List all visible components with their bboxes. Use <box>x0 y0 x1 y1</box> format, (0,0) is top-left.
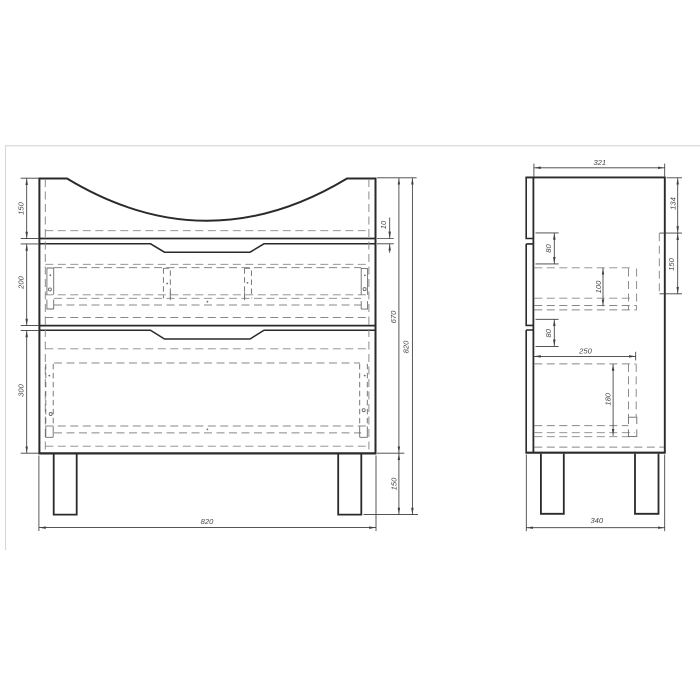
svg-text:100: 100 <box>594 280 603 293</box>
svg-text:150: 150 <box>667 257 676 270</box>
svg-text:820: 820 <box>201 517 214 526</box>
svg-text:340: 340 <box>590 516 603 525</box>
svg-text:321: 321 <box>593 158 606 167</box>
svg-text:250: 250 <box>578 347 592 356</box>
svg-text:150: 150 <box>390 477 399 490</box>
svg-text:10: 10 <box>379 220 388 229</box>
svg-text:820: 820 <box>401 340 410 353</box>
svg-text:200: 200 <box>16 275 25 289</box>
svg-text:670: 670 <box>389 310 398 323</box>
svg-text:80: 80 <box>544 328 553 337</box>
svg-text:80: 80 <box>544 244 553 253</box>
svg-text:300: 300 <box>16 383 25 396</box>
svg-text:134: 134 <box>668 197 677 210</box>
svg-text:180: 180 <box>603 392 612 405</box>
svg-text:150: 150 <box>16 201 25 214</box>
